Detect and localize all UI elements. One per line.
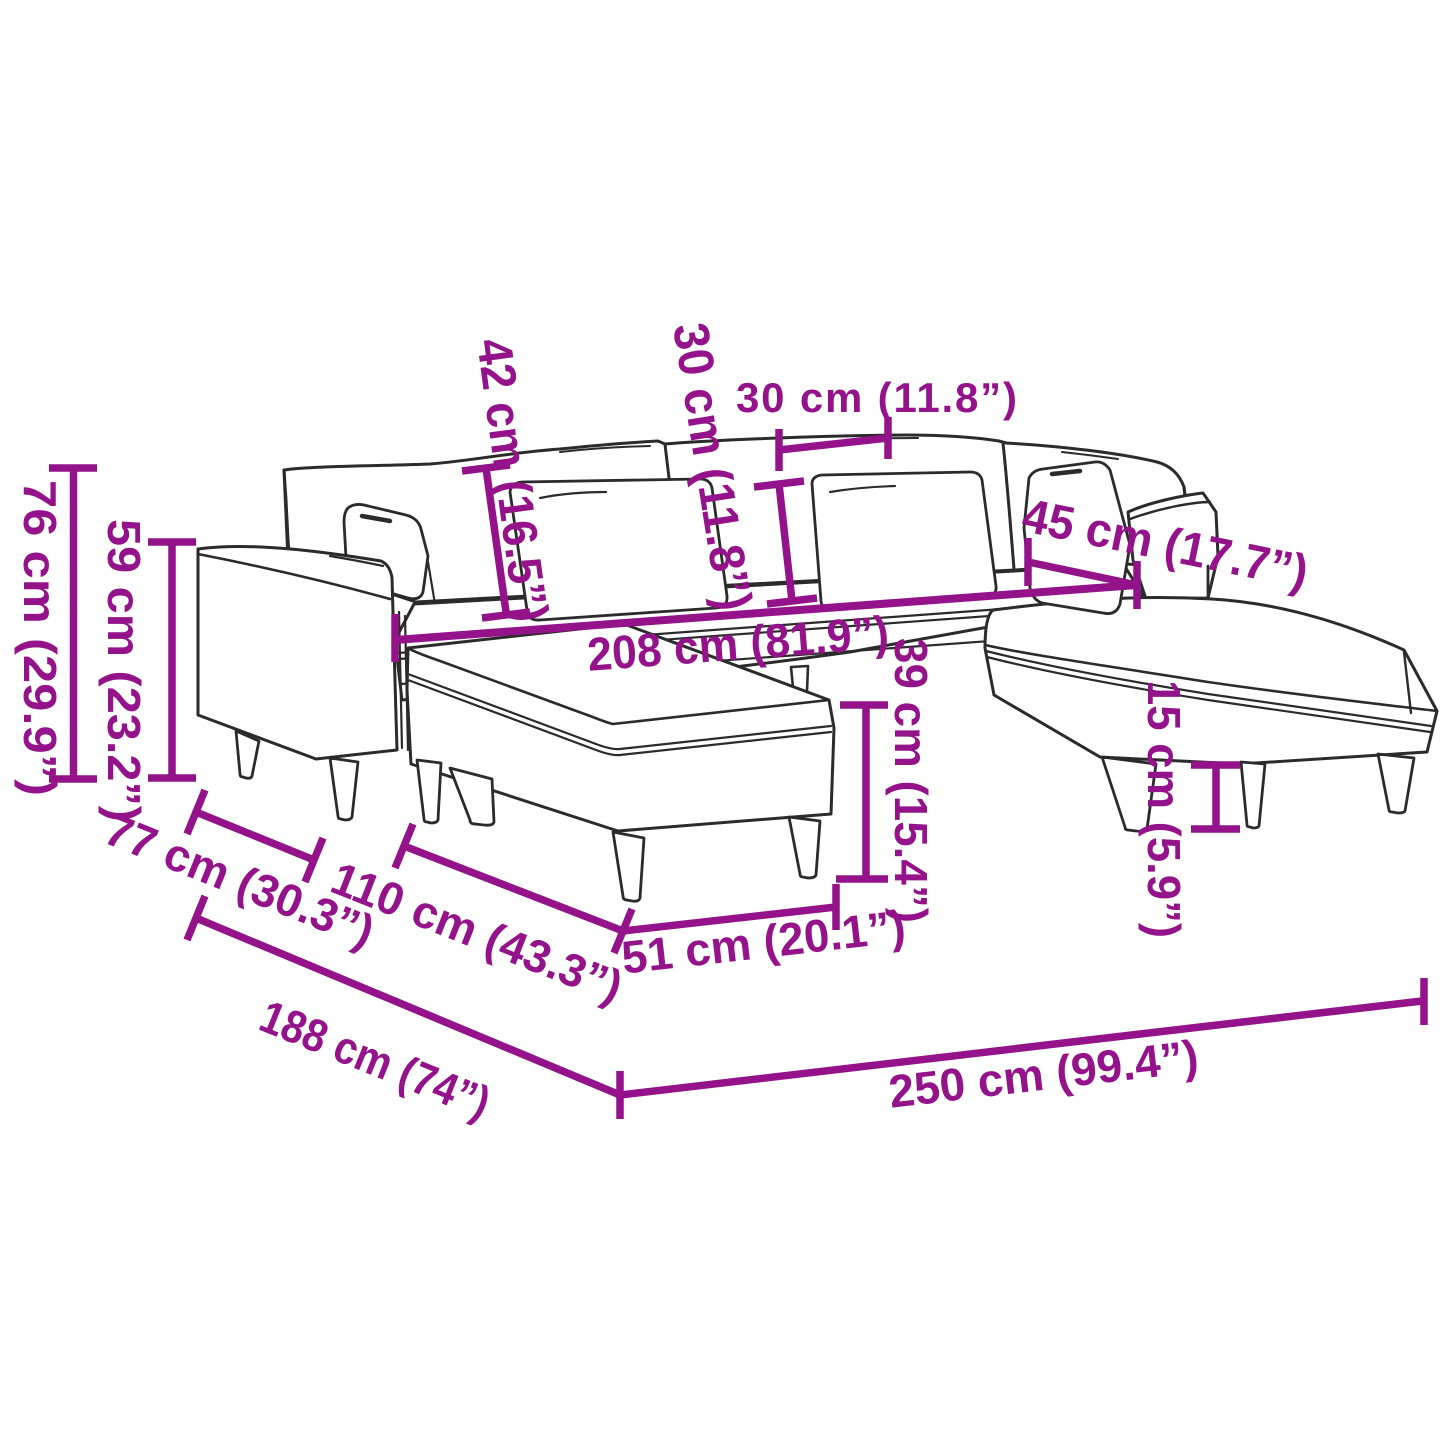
svg-text:15 cm (5.9”): 15 cm (5.9”) (1138, 680, 1190, 938)
svg-text:59 cm (23.2”): 59 cm (23.2”) (98, 519, 150, 822)
svg-text:76 cm (29.9”): 76 cm (29.9”) (14, 480, 66, 796)
svg-text:39 cm (15.4”): 39 cm (15.4”) (885, 638, 937, 923)
svg-text:30 cm (11.8”): 30 cm (11.8”) (736, 374, 1017, 421)
svg-text:188 cm (74”): 188 cm (74”) (253, 990, 498, 1129)
